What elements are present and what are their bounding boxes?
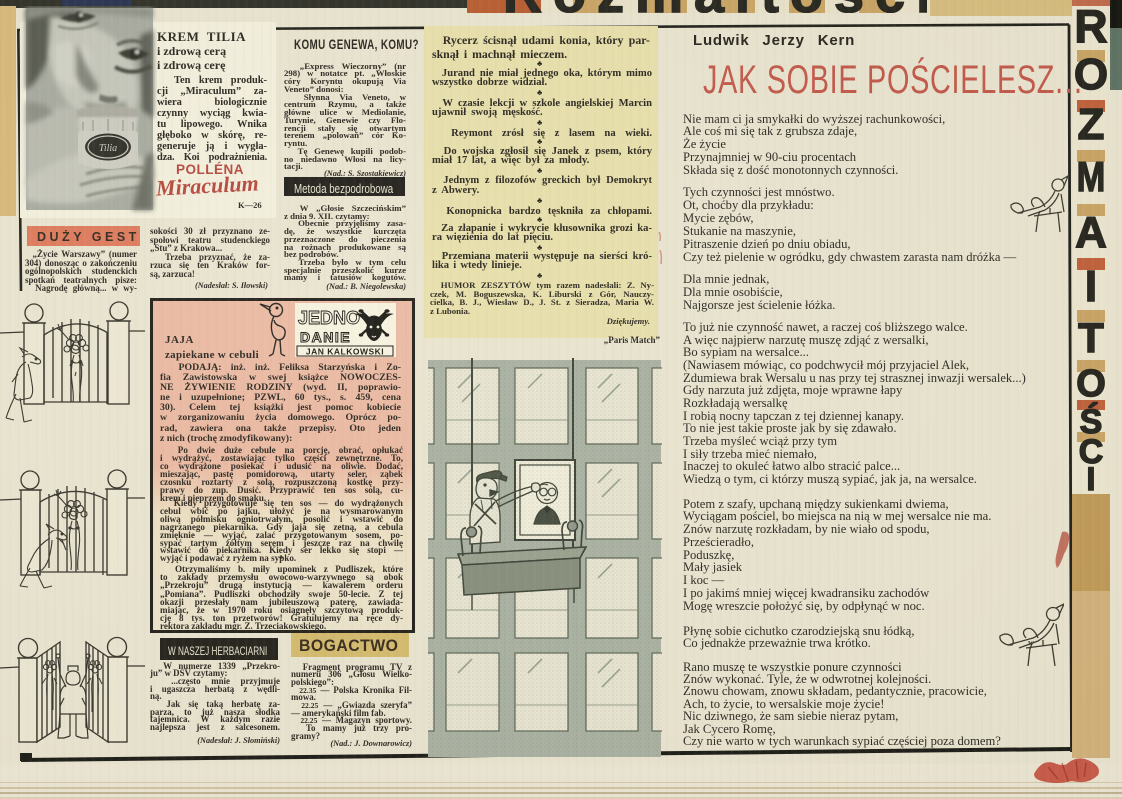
svg-text:w: w xyxy=(1028,638,1034,647)
svg-text:DANIE: DANIE xyxy=(300,329,351,345)
svg-text:JEDNO: JEDNO xyxy=(298,308,360,328)
svg-text:JAN KALKOWSKI: JAN KALKOWSKI xyxy=(306,347,384,357)
